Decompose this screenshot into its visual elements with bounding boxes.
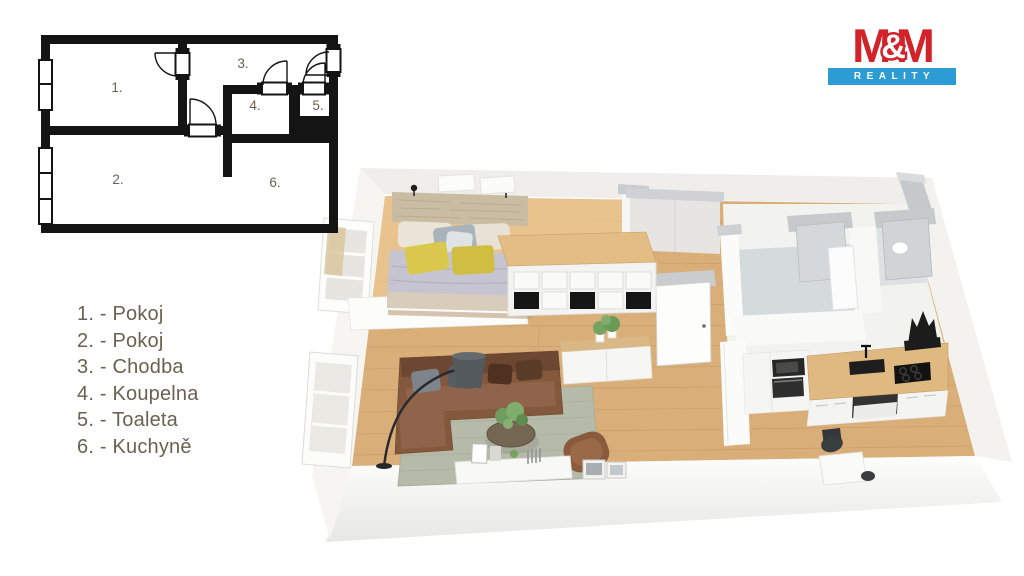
bathroom-south-wall	[733, 310, 866, 346]
living-window-glass	[309, 362, 352, 454]
wall-shelf-left	[438, 174, 475, 192]
legend-item-4: 4. - Koupelna	[77, 381, 199, 408]
room-label-4: 4.	[249, 98, 260, 113]
hall-door-handle	[702, 324, 706, 328]
bench-frame-1	[472, 444, 488, 464]
legend-item-6: 6. - Kuchyně	[77, 434, 199, 461]
small-desk	[819, 452, 867, 485]
sofa-pillow-brown-1	[487, 363, 512, 385]
wall-shelf-right	[480, 176, 515, 194]
logo-ampersand: &	[881, 25, 903, 69]
legend-item-1: 1. - Pokoj	[77, 301, 199, 328]
shelf-divider-wood-top	[498, 232, 656, 266]
floor-lamp-shade	[452, 356, 486, 388]
second-chair	[861, 471, 875, 481]
room-label-6: 6.	[269, 175, 280, 190]
floorplan-page: 1. 2. 3. 4. 5. 6. 1. - Pokoj 2. - Pokoj …	[0, 0, 1024, 576]
wall-lamp-left	[411, 185, 417, 191]
sofa-pillow-gray-1	[411, 368, 442, 394]
shelf-divider	[498, 232, 656, 316]
legend-item-2: 2. - Pokoj	[77, 328, 199, 355]
logo-mm-text: M&M	[828, 23, 956, 68]
toilet-bowl	[892, 242, 908, 254]
sofa-chaise	[399, 403, 446, 449]
bed-pillow-yellow-right	[451, 245, 494, 275]
room-label-2: 2.	[112, 172, 123, 187]
bench-frame-2	[490, 446, 501, 461]
bench-plant	[510, 450, 518, 458]
bathtub	[828, 246, 858, 310]
sofa-pillow-brown-2	[515, 359, 543, 381]
legend-item-5: 5. - Toaleta	[77, 407, 199, 434]
logo-reality-banner: REALITY	[828, 68, 956, 85]
room-label-3: 3.	[237, 56, 248, 71]
hall-door	[656, 282, 711, 366]
bathroom-west-wall-cap	[717, 224, 742, 236]
plan-2d-schematic: 1. 2. 3. 4. 5. 6.	[32, 28, 352, 243]
room-legend: 1. - Pokoj 2. - Pokoj 3. - Chodba 4. - K…	[77, 301, 199, 460]
bed-headboard	[392, 192, 528, 226]
plan-3d-render	[300, 148, 1024, 576]
brand-logo: M&M REALITY	[828, 23, 956, 85]
room-label-5: 5.	[312, 98, 323, 113]
legend-item-3: 3. - Chodba	[77, 354, 199, 381]
room-label-1: 1.	[111, 80, 122, 95]
